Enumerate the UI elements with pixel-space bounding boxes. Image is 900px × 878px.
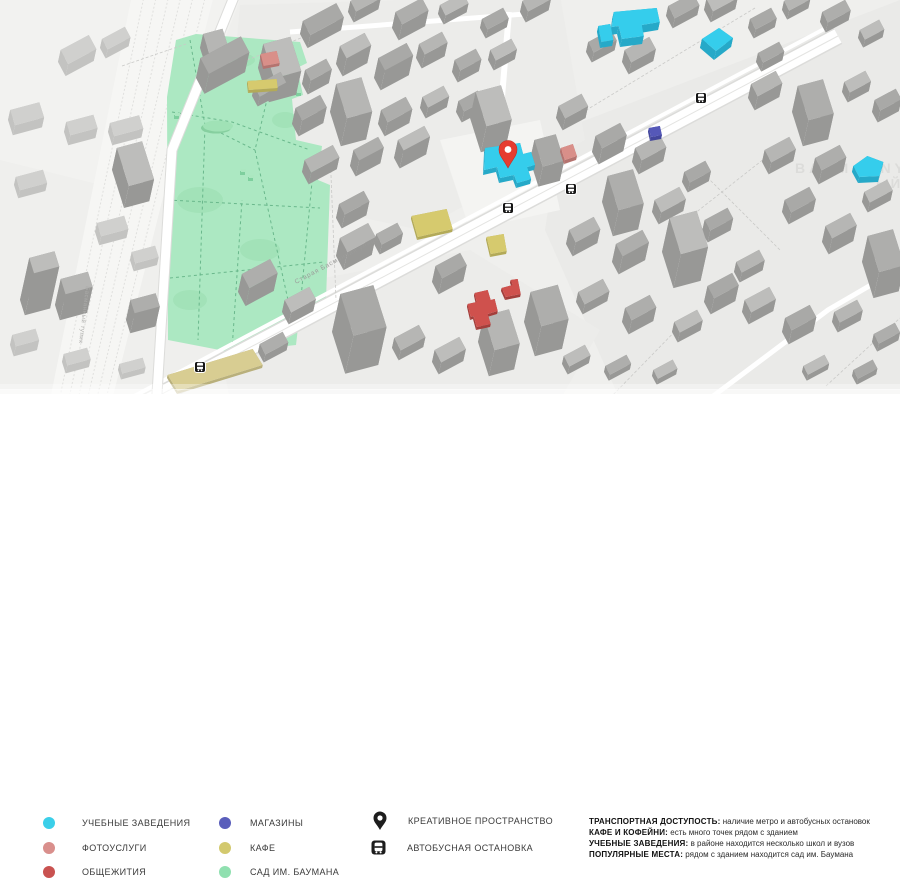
bus-glyph xyxy=(506,211,508,213)
infographic-page: { "legend": { "items": [ {"label": "УЧЕБ… xyxy=(0,0,900,506)
legend-item-cafe: КАФЕ xyxy=(219,842,275,854)
bus-glyph xyxy=(201,370,203,372)
legend-label: КАФЕ xyxy=(250,843,275,853)
info-block: ТРАНСПОРТНАЯ ДОСТУПОСТЬ: наличие метро и… xyxy=(589,816,894,860)
bus-glyph xyxy=(572,192,574,194)
info-line-education: УЧЕБНЫЕ ЗАВЕДЕНИЯ: в районе находится не… xyxy=(589,838,894,849)
bus-glyph xyxy=(569,192,571,194)
bus-stop-icon xyxy=(195,362,206,373)
bus-glyph xyxy=(197,366,203,367)
legend-label: АВТОБУСНАЯ ОСТАНОВКА xyxy=(407,843,533,853)
info-line-places: ПОПУЛЯРНЫЕ МЕСТА: рядом с зданием находи… xyxy=(589,849,894,860)
park-tree xyxy=(175,113,180,116)
legend-item-creative-space: КРЕАТИВНОЕ ПРОСТРАНСТВО xyxy=(372,811,553,831)
city-map: BASMANNY ЫЙ Старая Басманная улица Басма… xyxy=(0,0,900,400)
legend-label: КРЕАТИВНОЕ ПРОСТРАНСТВО xyxy=(408,816,553,826)
building-shops xyxy=(649,126,662,137)
legend: УЧЕБНЫЕ ЗАВЕДЕНИЯ ФОТОУСЛУГИ ОБЩЕЖИТИЯ М… xyxy=(0,400,900,506)
park-tree xyxy=(249,175,254,178)
park-tree xyxy=(241,169,246,172)
legend-label: ОБЩЕЖИТИЯ xyxy=(82,867,146,877)
info-line-cafe: КАФЕ И КОФЕЙНИ: есть много точек рядом с… xyxy=(589,827,894,838)
legend-item-shops: МАГАЗИНЫ xyxy=(219,817,303,829)
bus-glyph xyxy=(509,211,511,213)
bus-glyph xyxy=(698,97,704,98)
bus-stop-icon xyxy=(503,203,514,214)
bus-glyph xyxy=(568,188,574,189)
dorm-dot-icon xyxy=(43,866,55,878)
shops-dot-icon xyxy=(219,817,231,829)
bus-stop-icon xyxy=(566,184,577,195)
park-mound xyxy=(203,121,233,132)
bus-glyph xyxy=(702,101,704,103)
building-education xyxy=(858,176,879,183)
info-line-transport: ТРАНСПОРТНАЯ ДОСТУПОСТЬ: наличие метро и… xyxy=(589,816,894,827)
bus-glyph xyxy=(699,101,701,103)
bus-glyph xyxy=(198,370,200,372)
legend-item-education: УЧЕБНЫЕ ЗАВЕДЕНИЯ xyxy=(43,817,190,829)
legend-item-photo: ФОТОУСЛУГИ xyxy=(43,842,147,854)
education-dot-icon xyxy=(43,817,55,829)
location-pin-icon xyxy=(372,811,388,831)
photo-dot-icon xyxy=(43,842,55,854)
district-label-basmanny: BASMANNY xyxy=(795,160,900,176)
pin-hole xyxy=(505,146,512,153)
park-lawn xyxy=(177,187,223,213)
legend-label: УЧЕБНЫЕ ЗАВЕДЕНИЯ xyxy=(82,818,190,828)
park-lawn xyxy=(240,239,280,261)
map-canvas: BASMANNY ЫЙ Старая Басманная улица Басма… xyxy=(0,0,900,400)
bus-stop-icon xyxy=(696,93,707,104)
legend-item-bus-stop: АВТОБУСНАЯ ОСТАНОВКА xyxy=(371,840,533,855)
garden-dot-icon xyxy=(219,866,231,878)
bus-glyph xyxy=(505,207,511,208)
legend-label: ФОТОУСЛУГИ xyxy=(82,843,147,853)
cafe-dot-icon xyxy=(219,842,231,854)
bus-icon xyxy=(371,840,386,855)
legend-item-garden: САД ИМ. БАУМАНА xyxy=(219,866,339,878)
park-tree xyxy=(297,90,302,93)
park-lawn xyxy=(173,290,207,310)
legend-label: МАГАЗИНЫ xyxy=(250,818,303,828)
legend-label: САД ИМ. БАУМАНА xyxy=(250,867,339,877)
legend-item-dorm: ОБЩЕЖИТИЯ xyxy=(43,866,146,878)
